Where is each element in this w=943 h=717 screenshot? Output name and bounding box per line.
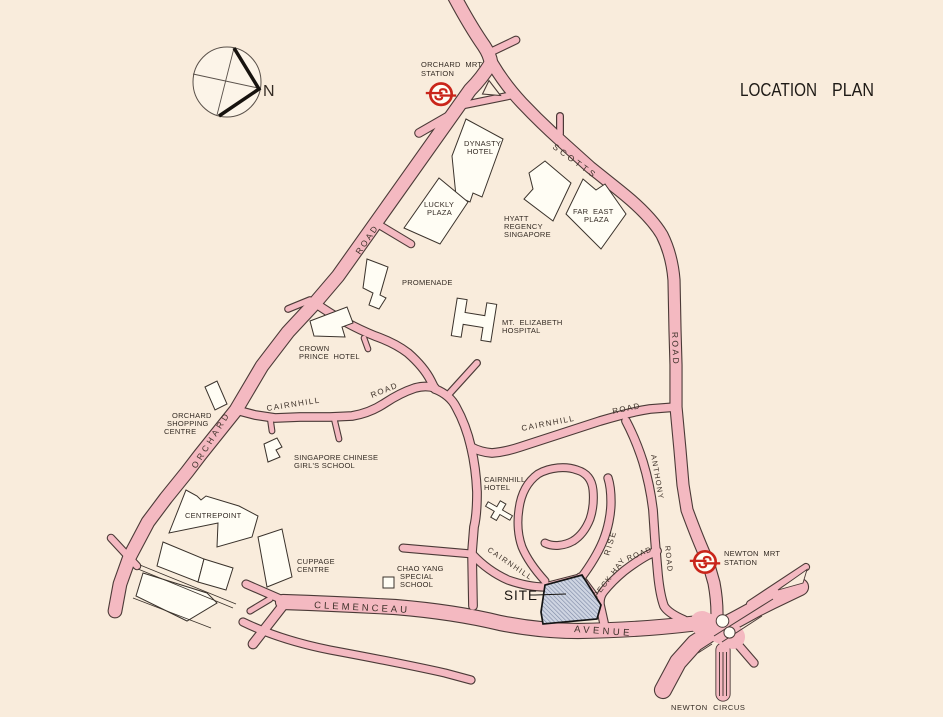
svg-text:HOTEL: HOTEL [467, 147, 493, 156]
svg-text:LOCATION: LOCATION [740, 80, 817, 100]
svg-text:PROMENADE: PROMENADE [402, 278, 453, 287]
svg-text:CENTREPOINT: CENTREPOINT [185, 511, 242, 520]
svg-text:SINGAPORE: SINGAPORE [504, 230, 551, 239]
svg-text:STATION: STATION [724, 558, 757, 567]
svg-text:PLAZA: PLAZA [584, 215, 609, 224]
svg-text:STATION: STATION [421, 69, 454, 78]
svg-text:PLAZA: PLAZA [427, 208, 452, 217]
svg-text:SITE: SITE [504, 588, 538, 603]
svg-text:GIRL'S SCHOOL: GIRL'S SCHOOL [294, 461, 355, 470]
svg-text:ORCHARD MRT: ORCHARD MRT [421, 60, 482, 69]
svg-text:HOSPITAL: HOSPITAL [502, 326, 541, 335]
svg-text:N: N [263, 83, 275, 100]
svg-text:CENTRE: CENTRE [297, 565, 329, 574]
svg-text:NEWTON MRT: NEWTON MRT [724, 549, 780, 558]
svg-text:SCHOOL: SCHOOL [400, 580, 433, 589]
svg-text:PLAN: PLAN [832, 80, 874, 100]
svg-text:CENTRE: CENTRE [164, 427, 196, 436]
svg-text:HOTEL: HOTEL [484, 483, 510, 492]
svg-text:ROAD: ROAD [670, 332, 681, 367]
svg-text:PRINCE HOTEL: PRINCE HOTEL [299, 352, 360, 361]
svg-text:NEWTON CIRCUS: NEWTON CIRCUS [671, 703, 746, 712]
